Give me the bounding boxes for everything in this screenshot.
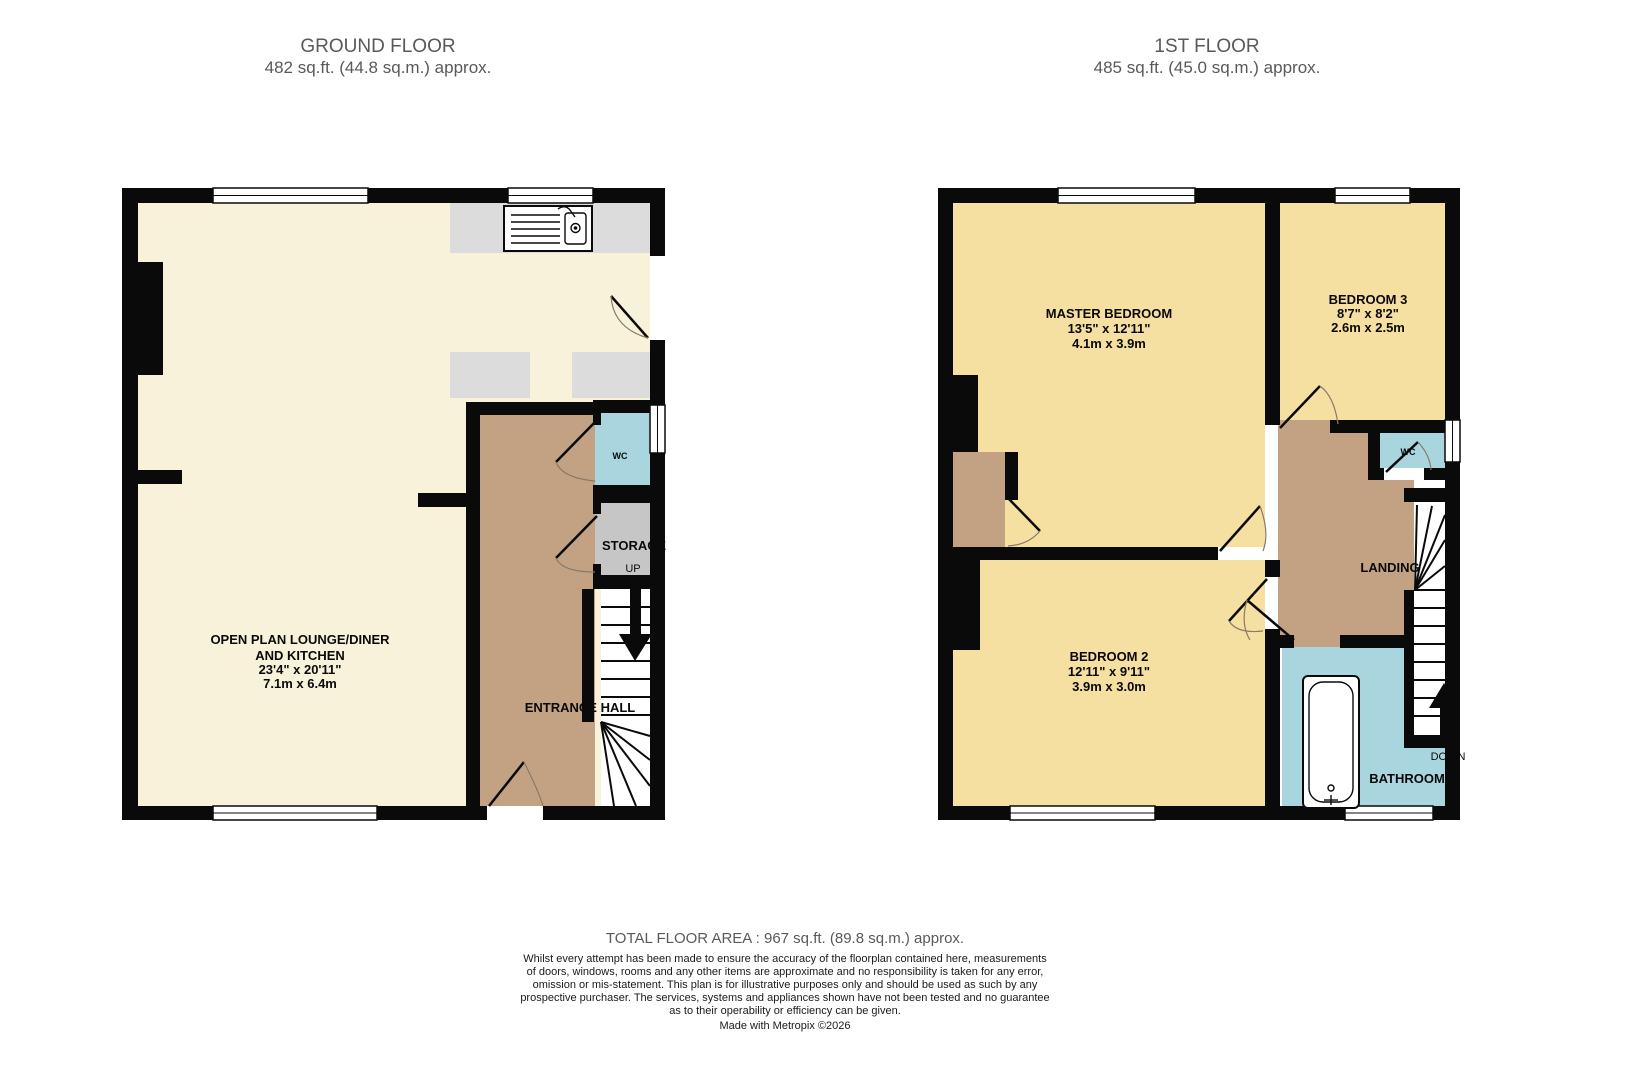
label-open-plan-metric: 7.1m x 6.4m (263, 676, 337, 691)
label-bedroom3-name: BEDROOM 3 (1329, 292, 1408, 307)
label-landing: LANDING (1360, 560, 1419, 575)
label-bedroom2-name: BEDROOM 2 (1070, 649, 1149, 664)
label-bedroom3-metric: 2.6m x 2.5m (1331, 320, 1405, 335)
label-master-imperial: 13'5" x 12'11" (1068, 321, 1151, 336)
label-bathroom: BATHROOM (1369, 771, 1445, 786)
label-entrance-hall: ENTRANCE HALL (525, 700, 636, 715)
label-storage: STORAGE (602, 538, 666, 553)
bathtub-icon (1303, 676, 1359, 808)
room-landing (1278, 433, 1378, 647)
label-stairs-up: UP (625, 563, 640, 575)
disclaimer-line: prospective purchaser. The services, sys… (435, 992, 1135, 1005)
label-open-plan-line2: AND KITCHEN (255, 648, 345, 663)
label-open-plan-imperial: 23'4" x 20'11" (259, 662, 342, 677)
kitchen-counter-block-left (450, 352, 530, 398)
label-master-metric: 4.1m x 3.9m (1072, 336, 1146, 351)
label-wc-ground: WC (613, 451, 628, 461)
label-wc-first: WC (1401, 447, 1416, 457)
disclaimer-line: as to their operability or efficiency ca… (435, 1005, 1135, 1018)
label-stairs-down: DOWN (1431, 751, 1466, 763)
disclaimer-line: Whilst every attempt has been made to en… (435, 953, 1135, 966)
label-bedroom2-imperial: 12'11" x 9'11" (1068, 664, 1150, 679)
room-entrance-hall (480, 415, 595, 806)
label-bedroom3-imperial: 8'7" x 8'2" (1337, 306, 1399, 321)
kitchen-sink-icon (504, 206, 592, 251)
chimney-breast (953, 560, 980, 650)
room-wc-ground (595, 413, 650, 487)
disclaimer-line: omission or mis-statement. This plan is … (435, 979, 1135, 992)
floorplan-drawing: OPEN PLAN LOUNGE/DINER AND KITCHEN 23'4"… (0, 0, 1645, 1080)
chimney-breast (137, 262, 163, 375)
footer: TOTAL FLOOR AREA : 967 sq.ft. (89.8 sq.m… (435, 930, 1135, 1033)
chimney-breast (953, 375, 978, 452)
disclaimer-line: of doors, windows, rooms and any other i… (435, 966, 1135, 979)
kitchen-counter-block-right (572, 352, 650, 398)
floorplan-page: GROUND FLOOR 482 sq.ft. (44.8 sq.m.) app… (0, 0, 1645, 1080)
first-floor-plan: MASTER BEDROOM 13'5" x 12'11" 4.1m x 3.9… (938, 188, 1465, 820)
total-floor-area: TOTAL FLOOR AREA : 967 sq.ft. (89.8 sq.m… (435, 930, 1135, 947)
label-bedroom2-metric: 3.9m x 3.0m (1072, 679, 1146, 694)
metropix-credit: Made with Metropix ©2026 (435, 1020, 1135, 1033)
label-master-name: MASTER BEDROOM (1046, 306, 1172, 321)
master-cupboard (953, 452, 1005, 547)
ground-floor-plan: OPEN PLAN LOUNGE/DINER AND KITCHEN 23'4"… (122, 188, 666, 820)
label-open-plan-line1: OPEN PLAN LOUNGE/DINER (210, 632, 390, 647)
